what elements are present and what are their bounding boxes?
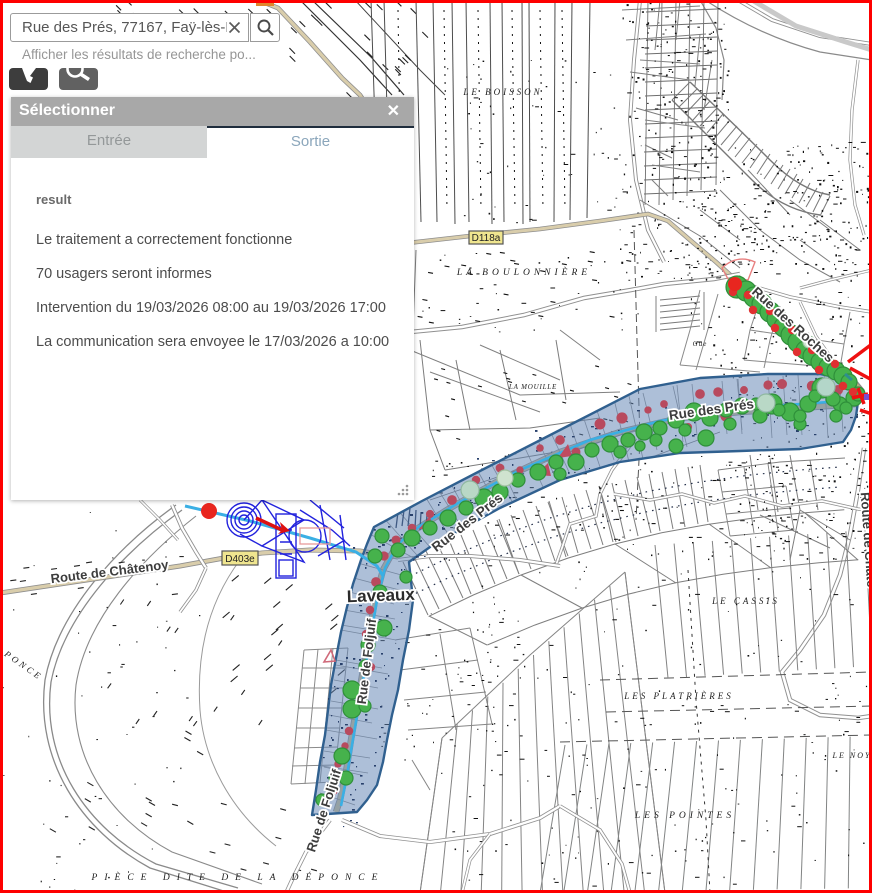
svg-text:LE CASSIS: LE CASSIS [711, 596, 780, 606]
svg-text:PIÈCE DITE DE LA DÉPONCE: PIÈCE DITE DE LA DÉPONCE [91, 871, 385, 883]
svg-text:D118a: D118a [472, 233, 501, 244]
svg-text:D403e: D403e [225, 554, 255, 565]
svg-text:LA MOUILLE: LA MOUILLE [508, 383, 557, 391]
svg-text:LE BOISSON: LE BOISSON [462, 87, 542, 97]
svg-text:LA BOULONNIÈRE: LA BOULONNIÈRE [456, 266, 591, 278]
svg-text:LE NOY: LE NOY [832, 751, 872, 760]
svg-text:Gue: Gue [693, 340, 708, 348]
svg-text:Laveaux: Laveaux [346, 585, 415, 606]
svg-text:LES PLATRIÈRES: LES PLATRIÈRES [623, 691, 733, 701]
svg-text:LES POINTES: LES POINTES [634, 811, 735, 821]
